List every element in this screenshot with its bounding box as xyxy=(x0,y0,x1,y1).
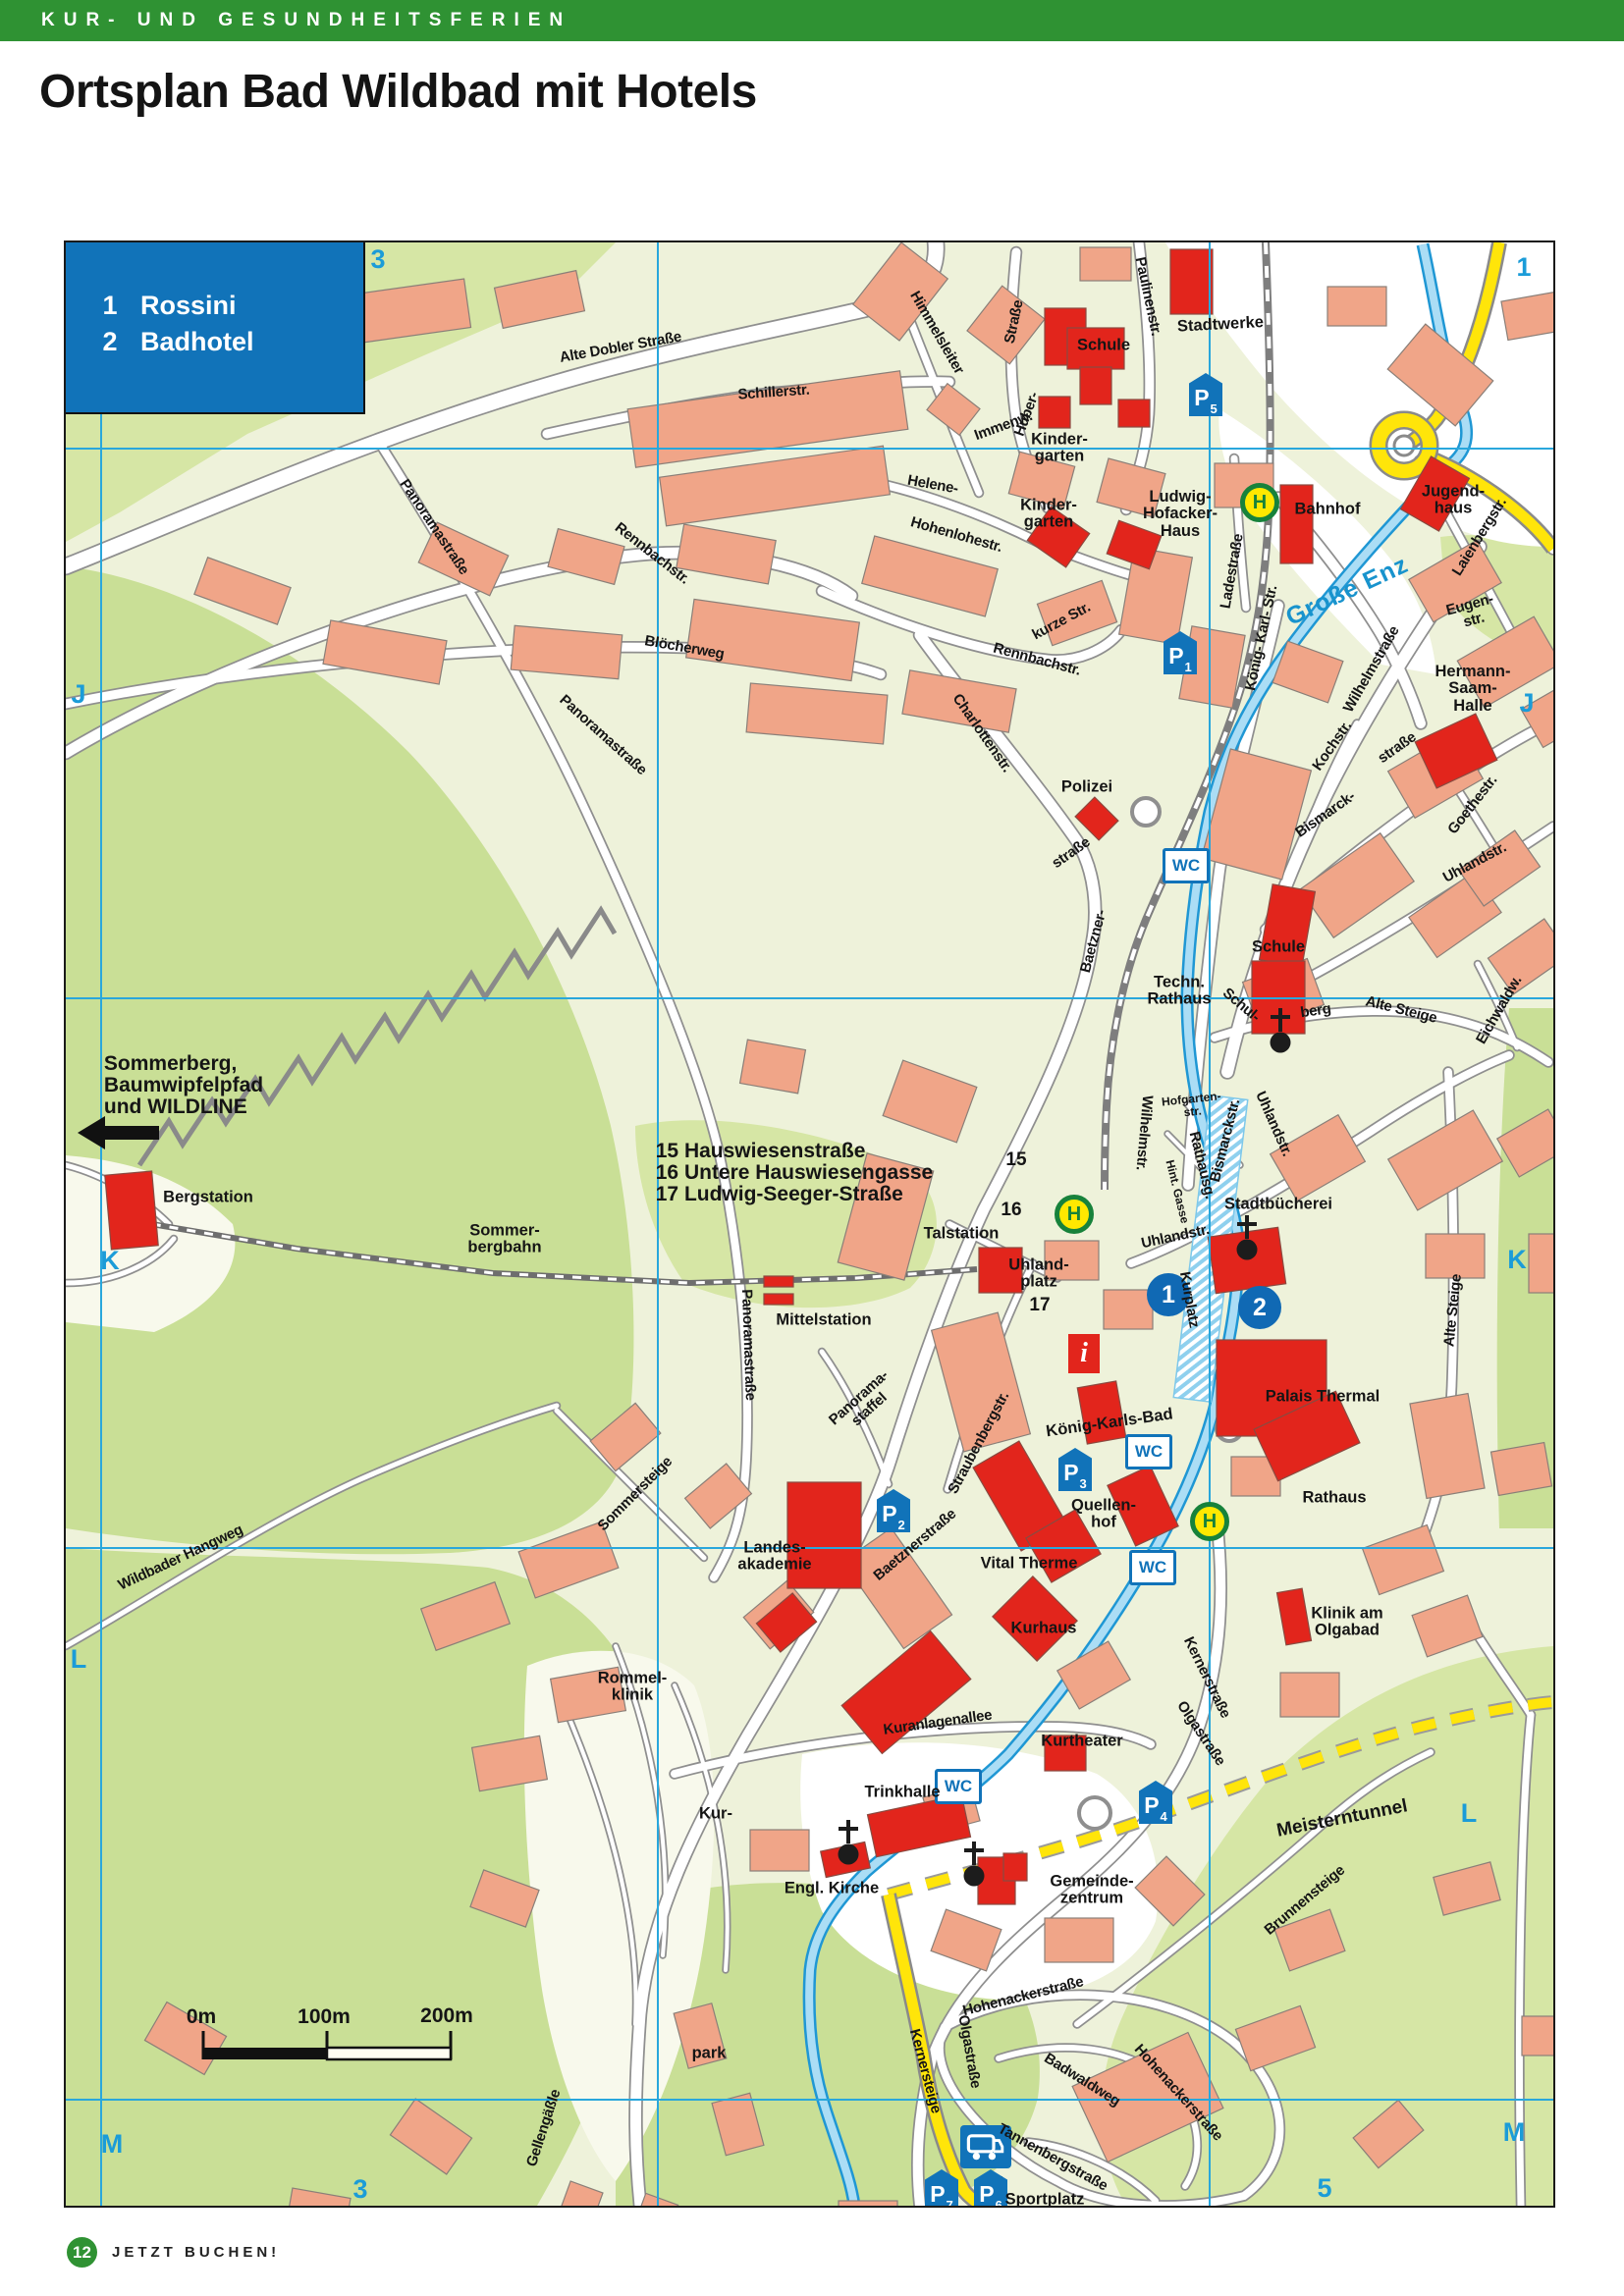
legend-item-name: Badhotel xyxy=(140,324,254,360)
legend-item-number: 2 xyxy=(95,324,125,360)
building xyxy=(1080,247,1131,281)
map-canvas xyxy=(66,242,1553,2206)
building xyxy=(1529,1234,1553,1293)
building xyxy=(750,1830,809,1871)
building xyxy=(1426,1234,1485,1278)
hotel-legend: 1Rossini2Badhotel xyxy=(66,242,365,414)
building xyxy=(1491,1443,1552,1496)
page-number-badge: 12 xyxy=(67,2237,97,2268)
header-bar: KUR- UND GESUNDHEITSFERIEN xyxy=(0,0,1624,41)
header-kicker: KUR- UND GESUNDHEITSFERIEN xyxy=(41,10,571,31)
page-title: Ortsplan Bad Wildbad mit Hotels xyxy=(39,65,757,119)
roundabout-icon xyxy=(1079,1797,1110,1829)
public-building xyxy=(764,1276,793,1287)
public-building xyxy=(1045,1735,1086,1771)
public-building xyxy=(1080,367,1111,404)
public-building xyxy=(1118,400,1150,427)
building xyxy=(1104,1290,1153,1329)
public-building xyxy=(787,1482,861,1588)
public-building xyxy=(1003,1853,1027,1881)
legend-item: 1Rossini xyxy=(95,288,363,324)
building xyxy=(839,2201,897,2206)
public-building xyxy=(1208,1227,1285,1293)
public-building xyxy=(1280,485,1313,563)
building xyxy=(1215,463,1273,507)
legend-item-number: 1 xyxy=(95,288,125,324)
building xyxy=(1522,2016,1553,2056)
building xyxy=(511,625,623,678)
public-building xyxy=(1039,397,1070,428)
building xyxy=(740,1040,806,1094)
legend-item-name: Rossini xyxy=(140,288,237,324)
public-building xyxy=(105,1171,158,1250)
roundabout-icon xyxy=(1132,798,1160,826)
building xyxy=(1045,1241,1099,1280)
roundabout-icon xyxy=(1379,420,1430,471)
public-building xyxy=(979,1248,1022,1293)
town-map: 1Rossini2Badhotel P5P1P2P3P4P6P7WCWCWCWC… xyxy=(64,240,1555,2208)
building xyxy=(1280,1673,1339,1717)
building xyxy=(1045,1918,1113,1962)
public-building xyxy=(764,1294,793,1305)
page-footer: 12 JETZT BUCHEN! xyxy=(67,2237,280,2268)
public-building xyxy=(1067,328,1124,369)
public-building xyxy=(1170,249,1213,314)
footer-call-to-action: JETZT BUCHEN! xyxy=(112,2244,280,2261)
legend-item: 2Badhotel xyxy=(95,324,363,360)
building xyxy=(1327,287,1386,326)
